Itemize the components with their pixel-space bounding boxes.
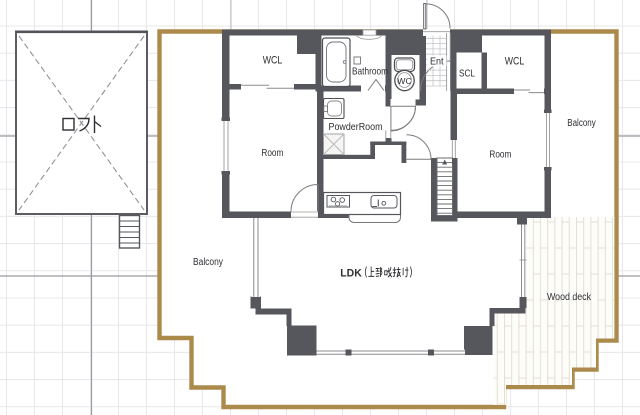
svg-text:Room: Room <box>261 147 283 159</box>
svg-text:WC: WC <box>397 76 412 86</box>
svg-text:Ent: Ent <box>430 57 444 68</box>
svg-text:WCL: WCL <box>505 56 525 68</box>
svg-text:WCL: WCL <box>263 55 283 67</box>
svg-text:LDK: LDK <box>340 268 362 280</box>
svg-text:Balcony: Balcony <box>193 257 223 268</box>
svg-text:PowderRoom: PowderRoom <box>329 121 383 133</box>
svg-text:Wood deck: Wood deck <box>547 291 592 303</box>
svg-text:Room: Room <box>489 148 511 160</box>
svg-text:SCL: SCL <box>459 68 475 80</box>
svg-text:Bathroom: Bathroom <box>352 66 388 78</box>
svg-text:Balcony: Balcony <box>567 118 596 129</box>
